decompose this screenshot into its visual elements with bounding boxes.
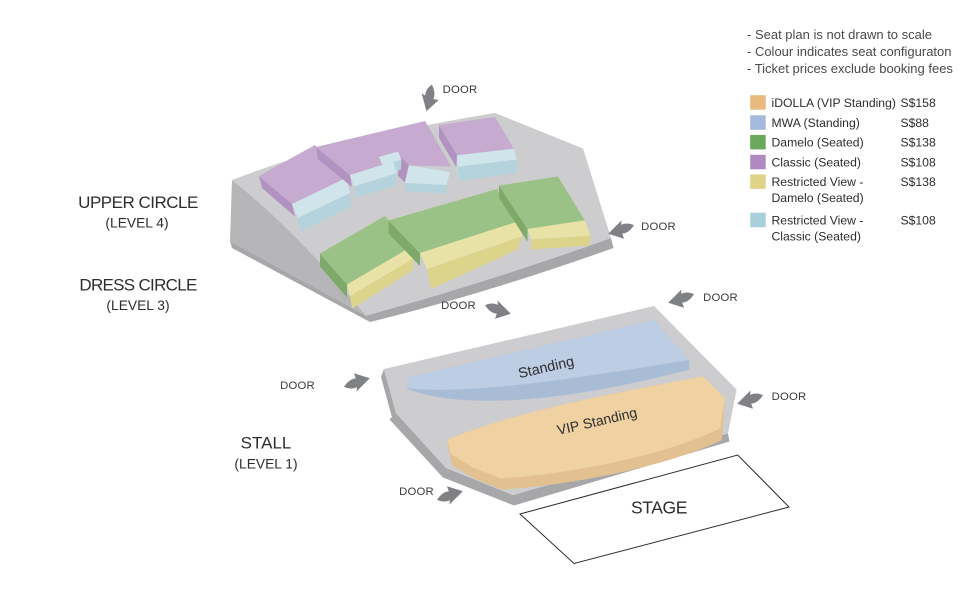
- svg-text:Damelo (Seated): Damelo (Seated): [772, 136, 864, 150]
- svg-text:S$138: S$138: [901, 175, 936, 189]
- svg-text:Classic (Seated): Classic (Seated): [772, 156, 861, 170]
- svg-text:Restricted View -: Restricted View -: [772, 175, 864, 189]
- svg-text:STAGE: STAGE: [631, 498, 687, 518]
- svg-text:- Ticket prices exclude bookin: - Ticket prices exclude booking fees: [747, 61, 953, 76]
- svg-text:MWA (Standing): MWA (Standing): [772, 116, 860, 130]
- svg-text:DOOR: DOOR: [399, 486, 434, 498]
- svg-text:Classic (Seated): Classic (Seated): [772, 229, 861, 243]
- svg-text:S$138: S$138: [901, 136, 936, 150]
- svg-text:- Seat plan is not drawn to sc: - Seat plan is not drawn to scale: [747, 27, 932, 42]
- svg-text:DOOR: DOOR: [703, 292, 738, 304]
- svg-text:DOOR: DOOR: [641, 221, 676, 233]
- svg-text:S$158: S$158: [901, 96, 936, 110]
- svg-text:S$108: S$108: [901, 156, 936, 170]
- svg-text:(LEVEL 1): (LEVEL 1): [234, 457, 297, 472]
- svg-text:(LEVEL 4): (LEVEL 4): [105, 216, 168, 231]
- svg-text:S$88: S$88: [901, 116, 930, 130]
- svg-text:DOOR: DOOR: [280, 380, 315, 392]
- svg-text:Restricted View -: Restricted View -: [772, 213, 864, 227]
- svg-text:(LEVEL 3): (LEVEL 3): [106, 298, 169, 313]
- svg-text:STALL: STALL: [241, 434, 292, 453]
- svg-text:UPPER CIRCLE: UPPER CIRCLE: [78, 193, 198, 212]
- svg-text:DOOR: DOOR: [441, 300, 476, 312]
- svg-text:Damelo (Seated): Damelo (Seated): [772, 191, 864, 205]
- svg-text:DRESS CIRCLE: DRESS CIRCLE: [79, 276, 197, 295]
- svg-text:DOOR: DOOR: [772, 391, 807, 403]
- svg-text:- Colour indicates seat config: - Colour indicates seat configuraton: [747, 44, 952, 59]
- svg-text:S$108: S$108: [901, 213, 936, 227]
- svg-text:DOOR: DOOR: [443, 84, 478, 96]
- svg-text:iDOLLA (VIP Standing): iDOLLA (VIP Standing): [772, 96, 896, 110]
